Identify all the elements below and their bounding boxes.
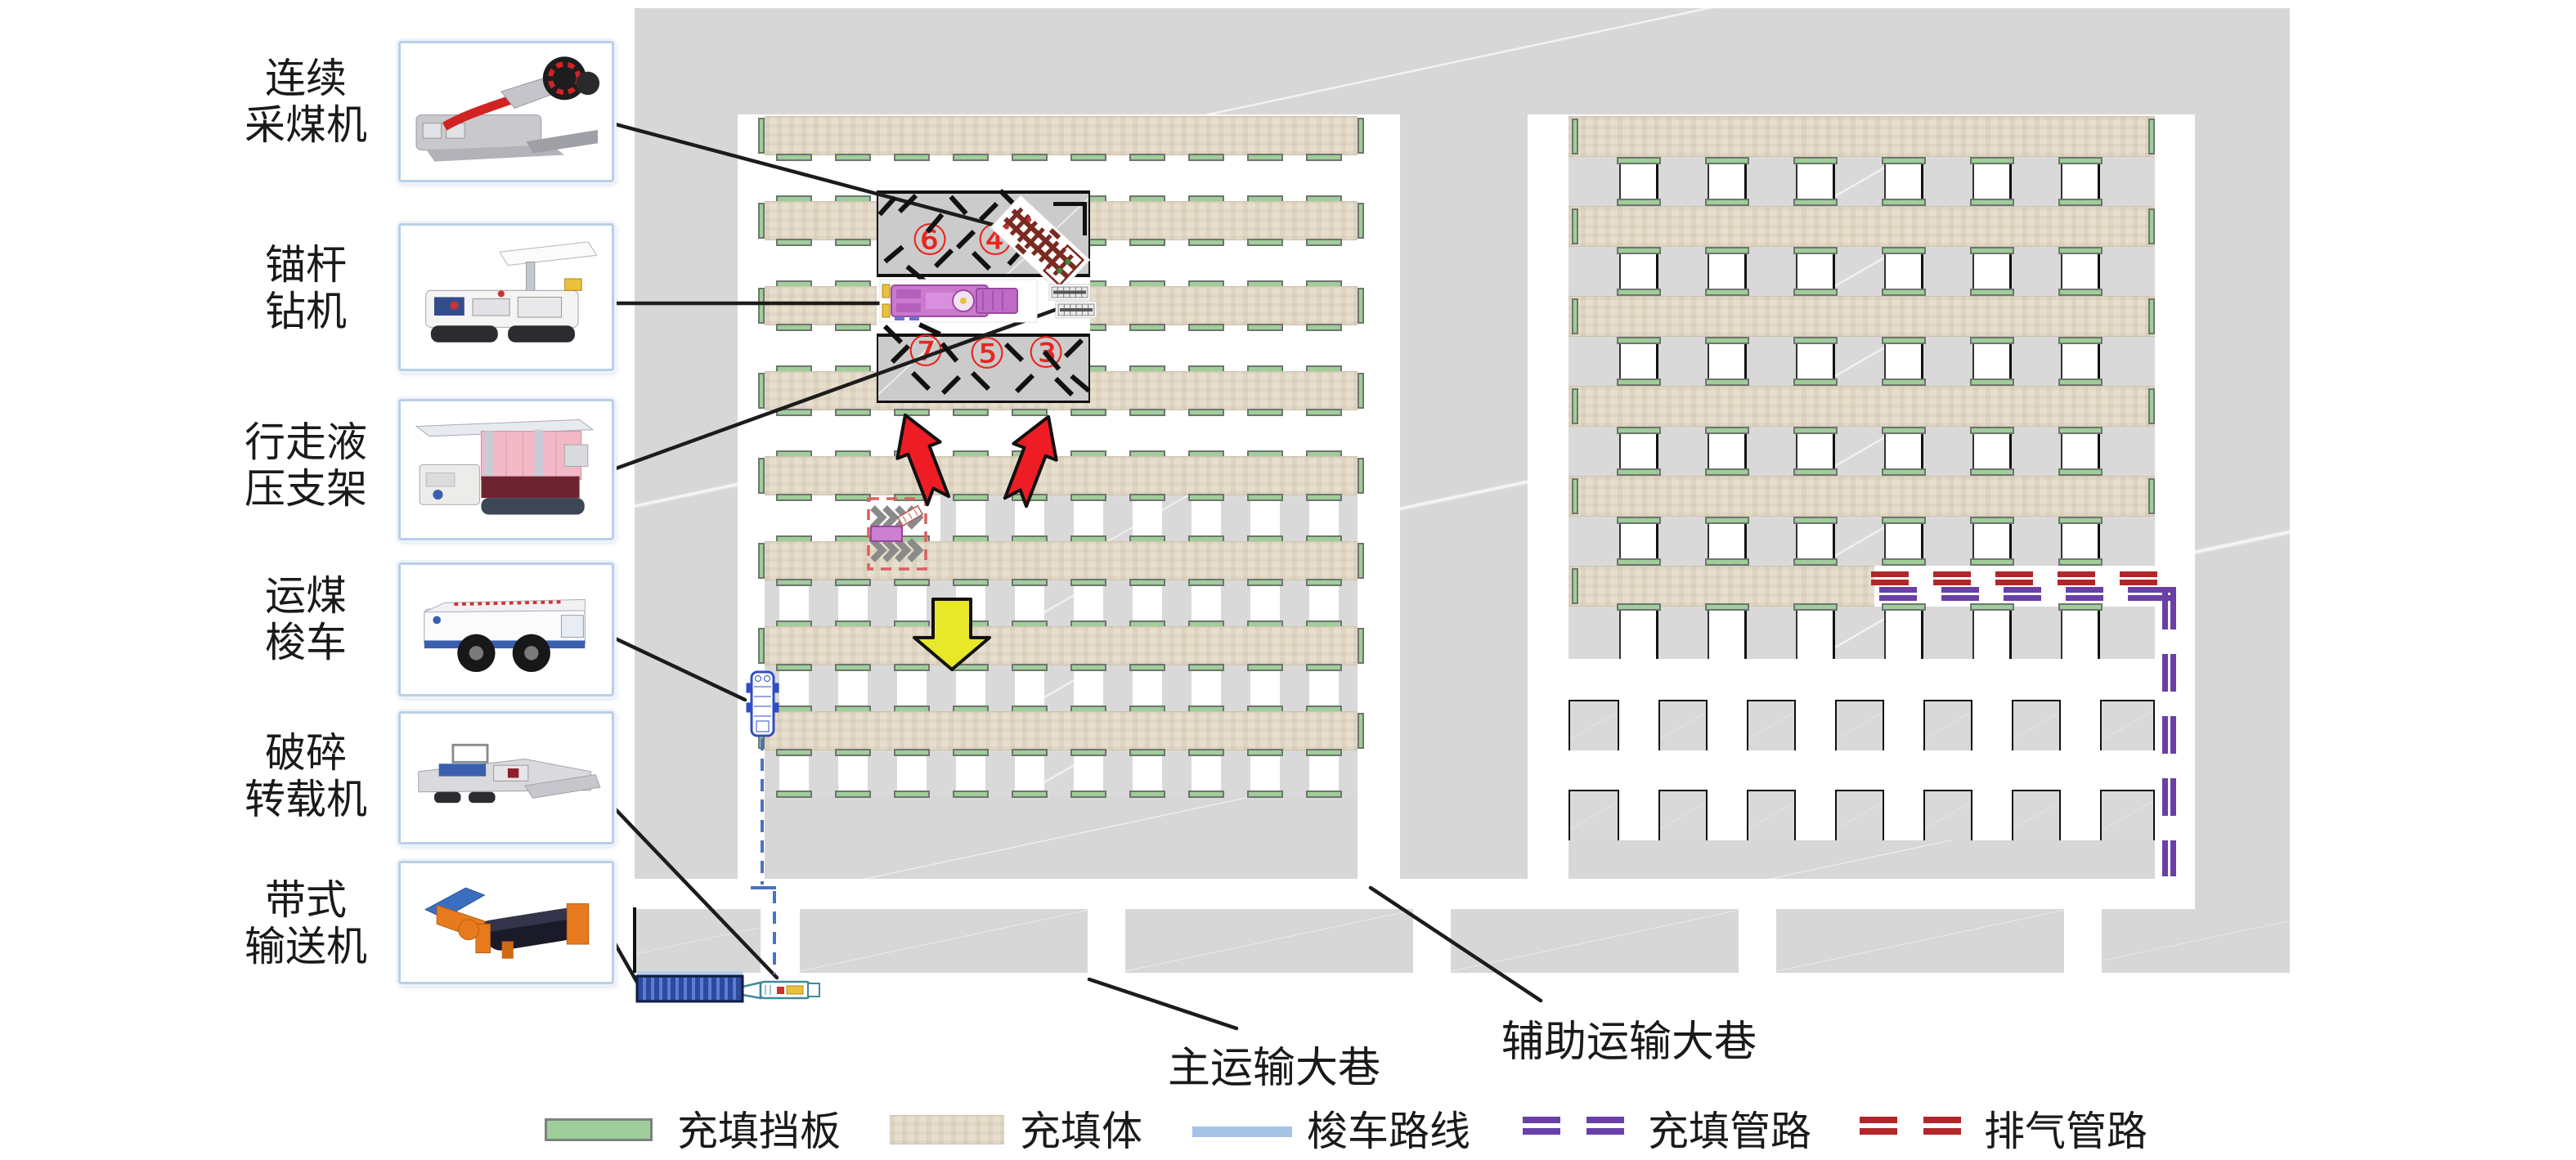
exhaust-pipeline-dash [1933,571,1971,585]
leader-line [612,637,745,700]
shuttle-car-image [398,562,614,696]
filling-pipeline-dash [2066,587,2103,601]
dashed-outline-corner [1083,202,1087,235]
shuttle-car-label: 运煤梭车 [219,573,393,666]
red-advance-arrow [884,407,959,509]
label-line: 输送机 [219,924,393,970]
legend-swatch-filling-pipeline [1586,1117,1624,1123]
legend-swatch-exhaust-pipeline [1860,1117,1897,1123]
legend-swatch-filling-body [890,1115,1004,1144]
label-line: 破碎 [219,730,393,777]
filling-pipeline-dash [2162,654,2176,692]
exhaust-pipeline-dash [1871,571,1909,585]
cut-sequence-dash [981,204,997,220]
mining-method-figure: ⑥ ④ ⑦ ⑤ ③ 连续采煤机 锚杆钻机 [0,0,2576,1160]
walking-support-plan-icon [1049,284,1090,300]
legend-swatch-shuttle-route [1192,1126,1292,1137]
continuous-miner-plan-icon [990,195,1090,293]
crusher-loader-plan-icon [743,982,819,998]
legend-swatch-filling-pipeline [1586,1128,1624,1135]
legend-swatch-filling-pipeline [1523,1128,1560,1135]
cut-sequence-dash [973,253,990,269]
cut-sequence-dash [1006,344,1022,361]
cut-sequence-dash [1071,376,1088,391]
label-line: 梭车 [219,620,393,666]
cut-sequence-dash [1066,340,1082,356]
continuous-miner-label: 连续采煤机 [219,56,393,149]
cut-sequence-dash [885,326,901,343]
label-line: 采煤机 [219,102,393,149]
roof-bolter-label: 锚杆钻机 [219,242,393,335]
deployed-walking-support-icon [871,506,922,560]
label-line: 锚杆 [219,242,393,289]
cut-sequence-dash [919,325,940,334]
label-line: 压支架 [219,466,393,513]
filling-pipeline-dash [2128,587,2176,601]
label-line: 连续 [219,56,393,102]
cut-sequence-dash [1016,375,1033,392]
belt-conveyor-image [398,861,614,984]
label-line: 转载机 [219,777,393,823]
filling-pipeline-dash [2162,840,2176,876]
cut-sequence-dash [880,198,895,215]
red-advance-arrow [994,409,1070,511]
cut-sequence-dash [885,247,902,262]
dashed-outline-corner [1053,202,1086,206]
shuttle-car-plan-icon [747,672,779,736]
legend-swatch-filling-baffle [545,1118,653,1141]
yellow-advance-arrow [914,599,990,670]
legend-swatch-exhaust-pipeline [1860,1128,1897,1135]
leader-line [1371,888,1541,1001]
cut-sequence-dash [936,250,952,266]
cut-sequence-dash [913,373,929,389]
cut-sequence-dash [1044,352,1059,369]
filling-pipeline-dash [1879,587,1917,601]
exhaust-pipeline-dash [2120,571,2157,585]
legend-label: 梭车路线 [1307,1108,1470,1154]
legend-swatch-exhaust-pipeline [1923,1117,1961,1123]
cut-sequence-dash [943,377,959,393]
continuous-miner-image [398,41,614,182]
leader-line [1089,979,1236,1028]
label-line: 运煤 [219,573,393,620]
roof-bolter-image [398,223,614,371]
legend-swatch-exhaust-pipeline [1923,1128,1961,1135]
cut-sequence-dash [927,214,942,231]
legend-label: 充填管路 [1648,1108,1811,1154]
walking-support-label: 行走液压支架 [219,419,393,513]
walking-support-plan-icon [1056,302,1097,318]
cut-sequence-dash [972,373,989,389]
cut-sequence-dash [951,197,967,214]
cut-sequence-dash [892,346,909,362]
legend-label: 排气管路 [1984,1108,2147,1154]
exhaust-pipeline-dash [1995,571,2033,585]
leader-line [609,123,1030,235]
crusher-loader-image [398,711,614,844]
belt-conveyor-plan-icon [637,971,743,1001]
filling-pipeline-dash [2162,716,2176,754]
crusher-loader-label: 破碎转载机 [219,730,393,823]
label-line: 钻机 [219,289,393,335]
exhaust-pipeline-dash [2058,571,2095,585]
legend-label: 充填挡板 [677,1108,841,1154]
auxiliary-roadway-label: 辅助运输大巷 [1501,1007,1757,1068]
filling-pipeline-dash [2004,587,2041,601]
roadway-wall-edge [633,907,636,973]
roof-bolter-plan-icon [880,280,1037,322]
cut-sequence-dash [1056,378,1072,395]
label-line: 带式 [219,877,393,924]
legend-swatch-filling-pipeline [1523,1117,1560,1123]
leader-line [609,309,1057,471]
filling-pipeline-dash [2162,778,2176,816]
cut-sequence-dash [907,266,924,281]
main-roadway-label: 主运输大巷 [1168,1033,1380,1095]
label-line: 行走液 [219,419,393,466]
shuttle-route-line [751,738,776,974]
filling-pipeline-dash [1941,587,1979,601]
legend-label: 充填体 [1020,1108,1142,1154]
walking-support-image [398,399,614,540]
cut-sequence-dash [958,231,974,248]
belt-conveyor-label: 带式输送机 [219,877,393,970]
